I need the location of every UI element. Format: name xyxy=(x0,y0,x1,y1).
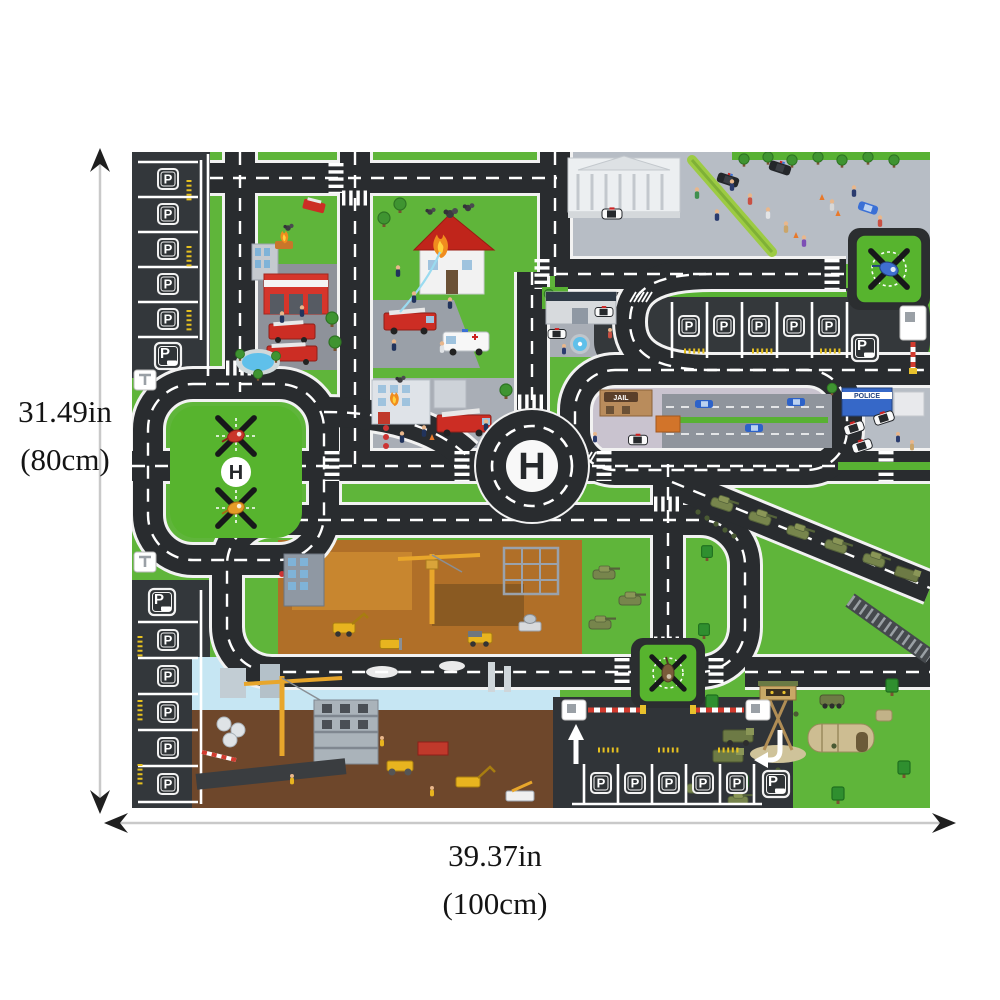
parking-sign-large: P xyxy=(768,773,778,790)
police-car xyxy=(629,434,648,445)
arrow-head-up xyxy=(90,148,110,172)
police-car xyxy=(602,207,622,219)
parking-sign: P xyxy=(164,669,173,684)
concrete-frame-building xyxy=(314,700,378,764)
roundabout: H xyxy=(475,409,589,523)
parking-sign: P xyxy=(665,776,674,791)
arrow-head-right xyxy=(932,813,956,833)
roundabout-helipad-letter: H xyxy=(518,446,545,488)
product-image-canvas: P P P P P P P P P P P P xyxy=(0,0,1000,1000)
bulldozer xyxy=(380,638,402,650)
parking-sign: P xyxy=(164,207,173,222)
apc xyxy=(820,695,844,709)
tower-building xyxy=(434,380,466,408)
jail-sign: JAIL xyxy=(613,395,629,402)
blue-car xyxy=(745,424,763,432)
parking-sign-large: P xyxy=(160,345,170,362)
height-metric: (80cm) xyxy=(0,436,130,484)
parking-sign: P xyxy=(164,633,173,648)
parking-sign: P xyxy=(164,277,173,292)
parking-sign: P xyxy=(790,319,799,334)
helipad-military xyxy=(631,638,705,708)
parking-sign: P xyxy=(699,776,708,791)
parking-sign: P xyxy=(164,312,173,327)
arrow-head-left xyxy=(104,813,128,833)
jail-building: JAIL xyxy=(600,390,652,416)
construction-pit xyxy=(432,584,524,626)
parking-sign: P xyxy=(164,705,173,720)
container xyxy=(656,416,680,432)
parking-sign-large: P xyxy=(154,591,164,608)
sandbags xyxy=(876,710,892,721)
arrow-head-down xyxy=(90,790,110,814)
height-value: 31.49in xyxy=(0,388,130,436)
parking-sign-large: P xyxy=(857,337,867,354)
police-sign: POLICE xyxy=(854,393,880,400)
blue-car xyxy=(695,400,713,408)
gate-booth xyxy=(900,306,926,340)
police-van xyxy=(548,328,566,338)
loop-helipad-letter: H xyxy=(229,462,243,484)
width-dimension-label: 39.37in (100cm) xyxy=(380,832,610,928)
width-value: 39.37in xyxy=(380,832,610,880)
plaza-green-margin xyxy=(732,152,930,160)
skyline-building xyxy=(220,668,246,698)
parking-sign: P xyxy=(733,776,742,791)
red-container xyxy=(418,742,448,755)
blue-car xyxy=(787,398,805,406)
parking-sign: P xyxy=(164,777,173,792)
width-metric: (100cm) xyxy=(380,880,610,928)
parking-sign: P xyxy=(164,741,173,756)
play-mat: P P P P P P P P P P P P xyxy=(132,152,930,808)
parking-sign: P xyxy=(755,319,764,334)
height-dimension-label: 31.49in (80cm) xyxy=(0,388,130,484)
parking-sign: P xyxy=(597,776,606,791)
helipad-top-right xyxy=(848,228,930,310)
parking-sign: P xyxy=(825,319,834,334)
helipad-loop: H xyxy=(170,406,302,538)
courthouse-building xyxy=(568,156,680,218)
police-van xyxy=(595,306,613,316)
quonset-hut xyxy=(808,724,874,752)
parking-sign: P xyxy=(685,319,694,334)
parking-sign: P xyxy=(720,319,729,334)
parking-sign: P xyxy=(164,242,173,257)
parking-sign: P xyxy=(164,172,173,187)
parking-sign: P xyxy=(631,776,640,791)
